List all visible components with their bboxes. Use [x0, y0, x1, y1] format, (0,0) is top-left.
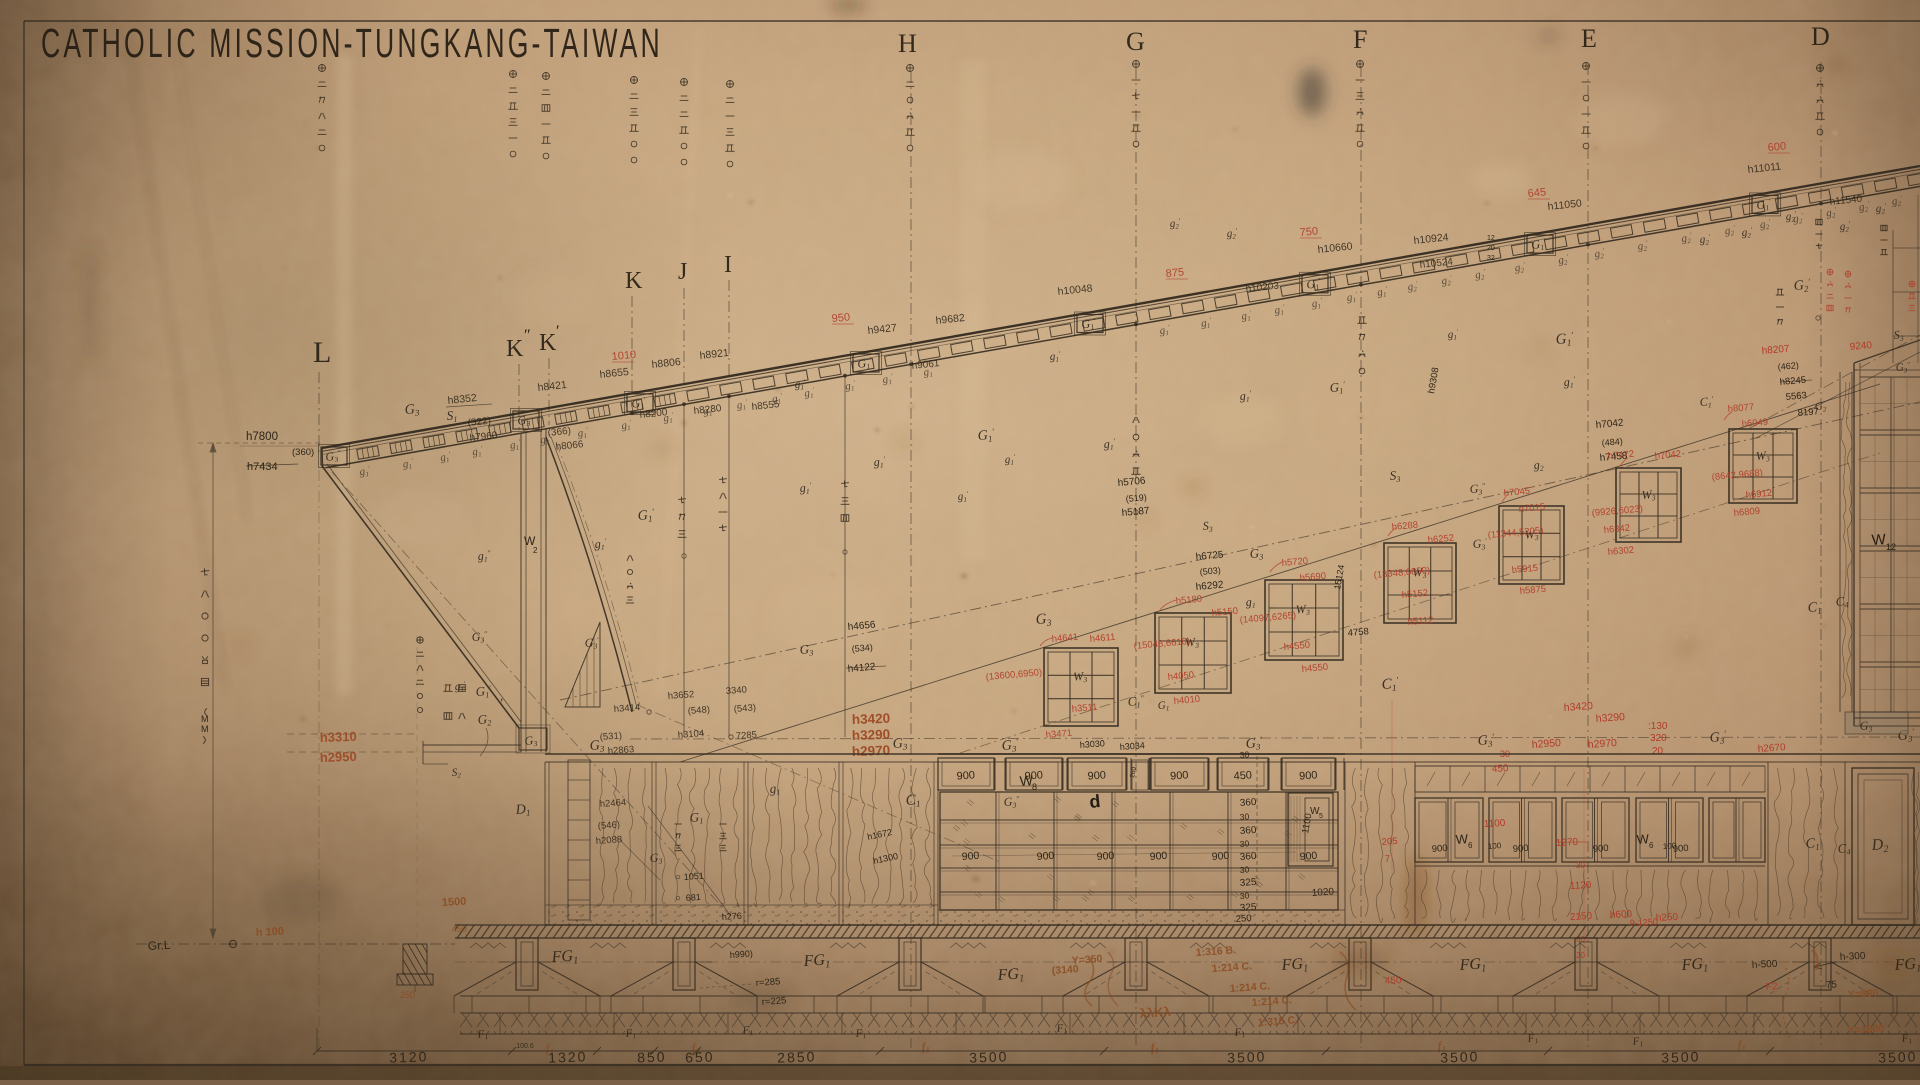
svg-text:h2970: h2970	[1587, 737, 1617, 751]
svg-text:3340: 3340	[725, 685, 747, 697]
svg-text:G3′: G3′	[1709, 728, 1727, 746]
svg-text:,: ,	[500, 689, 503, 703]
svg-text:G1′: G1′	[475, 683, 492, 700]
svg-text:h3290: h3290	[852, 727, 891, 743]
svg-text:(546): (546)	[597, 819, 620, 832]
svg-text:h4550: h4550	[1301, 662, 1328, 675]
svg-text:h7045: h7045	[1503, 486, 1530, 499]
svg-text:850: 850	[637, 1048, 667, 1065]
svg-text:E: E	[1581, 24, 1597, 53]
svg-text:(531): (531)	[599, 730, 622, 743]
svg-text:7285: 7285	[735, 730, 757, 742]
svg-text:h2670: h2670	[1757, 742, 1786, 755]
svg-text:h3420: h3420	[1563, 700, 1593, 714]
svg-text:h6288: h6288	[1391, 520, 1418, 533]
svg-text:I: I	[724, 252, 732, 278]
svg-text:G1′: G1′	[1080, 316, 1096, 333]
svg-text:100: 100	[1488, 841, 1502, 851]
svg-text:h7472: h7472	[1607, 449, 1634, 462]
svg-text:h3420: h3420	[852, 711, 891, 727]
svg-text:h3034: h3034	[1119, 740, 1145, 752]
svg-text:F: F	[1353, 25, 1367, 54]
svg-text:3500: 3500	[969, 1048, 1009, 1065]
svg-text:G1′: G1′	[637, 506, 655, 524]
svg-text:h6049: h6049	[1741, 417, 1768, 430]
svg-text:8: 8	[1032, 782, 1037, 792]
svg-text:h4050: h4050	[1167, 670, 1194, 683]
svg-text:6: 6	[1649, 841, 1654, 850]
svg-text:h3652: h3652	[667, 689, 694, 702]
svg-text:(519): (519)	[1125, 492, 1147, 504]
svg-text:h5150: h5150	[1211, 606, 1238, 619]
svg-text:1100: 1100	[1484, 818, 1506, 830]
svg-text:G1′: G1′	[1305, 276, 1321, 293]
svg-text:Gr.L: Gr.L	[147, 938, 171, 953]
svg-text:h6252: h6252	[1427, 533, 1454, 546]
svg-text:r=225: r=225	[761, 995, 786, 1008]
svg-text:1500: 1500	[442, 896, 467, 909]
svg-text:30: 30	[1239, 890, 1249, 901]
svg-text:G3′: G3′	[1477, 731, 1495, 749]
svg-text:3500: 3500	[1440, 1048, 1480, 1065]
svg-text:875: 875	[1165, 266, 1184, 280]
svg-text:250: 250	[1235, 913, 1252, 925]
svg-text:3500: 3500	[1661, 1048, 1701, 1065]
svg-text:5: 5	[1319, 813, 1323, 820]
svg-text:CATHOLIC MISSION-TUNGKANG-TAIW: CATHOLIC MISSION-TUNGKANG-TAIWAN	[41, 21, 663, 66]
svg-text:12: 12	[1886, 542, 1896, 552]
svg-text:h3471: h3471	[1045, 728, 1072, 741]
svg-text:450: 450	[1385, 975, 1403, 987]
svg-text:G3′: G3′	[1472, 536, 1487, 552]
svg-text:100.6: 100.6	[516, 1043, 534, 1050]
svg-text:h4641: h4641	[1051, 632, 1078, 645]
svg-text:100: 100	[1663, 841, 1677, 851]
svg-text:1010: 1010	[611, 349, 636, 363]
svg-text:K: K	[625, 268, 643, 294]
svg-text:G1′: G1′	[977, 426, 995, 444]
svg-text:C1′: C1′	[1699, 394, 1714, 410]
svg-text:h2863: h2863	[607, 744, 634, 757]
svg-text:4758: 4758	[1347, 626, 1369, 639]
svg-text:G3′: G3′	[584, 635, 599, 651]
svg-text:3120: 3120	[389, 1048, 429, 1065]
svg-text:h276: h276	[721, 911, 742, 922]
svg-text:h5690: h5690	[1299, 571, 1326, 584]
svg-text:r=285: r=285	[755, 976, 780, 989]
svg-text:W: W	[1871, 531, 1887, 549]
svg-text:7: 7	[1384, 854, 1390, 865]
svg-text:600: 600	[1767, 140, 1786, 154]
svg-text:h990): h990)	[729, 948, 753, 960]
svg-text:20: 20	[1487, 245, 1495, 252]
svg-text:h2950: h2950	[1531, 737, 1561, 751]
svg-text:900: 900	[1592, 843, 1609, 855]
svg-text:900: 900	[1299, 769, 1318, 782]
svg-text:9240: 9240	[1849, 340, 1873, 353]
svg-text:5563: 5563	[1785, 390, 1807, 403]
svg-text:h-300: h-300	[1840, 951, 1867, 963]
svg-text:30: 30	[1239, 838, 1249, 849]
svg-text:M: M	[201, 724, 209, 734]
svg-text:2850: 2850	[777, 1048, 817, 1065]
svg-text:G1′: G1′	[1530, 236, 1546, 253]
svg-text:h4550: h4550	[1283, 640, 1310, 653]
svg-text:h6302: h6302	[1607, 545, 1634, 558]
svg-text:G1′: G1′	[856, 355, 872, 372]
svg-text:950: 950	[831, 311, 850, 325]
svg-text:h-500: h-500	[1752, 959, 1779, 971]
svg-text:h7434: h7434	[247, 461, 278, 473]
svg-text:900: 900	[1170, 769, 1189, 782]
svg-text:320: 320	[1650, 733, 1667, 744]
svg-text:681: 681	[685, 892, 701, 903]
svg-text:360: 360	[1239, 825, 1257, 837]
svg-text:3500: 3500	[1878, 1048, 1918, 1065]
svg-text:(484): (484)	[1601, 436, 1623, 448]
svg-text:h7015: h7015	[1518, 502, 1545, 515]
svg-text:h2950: h2950	[320, 749, 357, 765]
svg-text:F2: F2	[1766, 981, 1779, 993]
svg-text:H: H	[898, 29, 917, 58]
svg-text:h3290: h3290	[1595, 711, 1625, 725]
svg-text:450: 450	[1233, 769, 1252, 782]
svg-text:h2970: h2970	[852, 743, 891, 759]
svg-text:900: 900	[1096, 850, 1114, 863]
svg-text:6: 6	[1468, 841, 1473, 850]
svg-text:(548): (548)	[687, 704, 710, 717]
svg-text:K: K	[506, 336, 524, 362]
svg-text:h8077: h8077	[1727, 402, 1754, 415]
svg-text:(360): (360)	[292, 447, 314, 458]
svg-text:Y=900: Y=900	[1847, 987, 1879, 1001]
svg-text:8197: 8197	[1797, 406, 1819, 419]
svg-text:h6912: h6912	[1745, 488, 1772, 501]
svg-text:h7042: h7042	[1654, 449, 1681, 462]
svg-text:h4010: h4010	[1173, 694, 1200, 707]
svg-text:h5875: h5875	[1519, 584, 1546, 597]
svg-text:30: 30	[1239, 811, 1249, 822]
svg-text:G1′: G1′	[1329, 379, 1346, 396]
svg-text:(543): (543)	[733, 702, 756, 715]
svg-text:h5152: h5152	[1401, 588, 1428, 601]
svg-text:30: 30	[1239, 749, 1249, 760]
svg-text:h4611: h4611	[1089, 632, 1116, 645]
svg-text:λλΚλ: λλΚλ	[1139, 1004, 1172, 1021]
svg-text:900: 900	[1431, 843, 1448, 855]
svg-text:360: 360	[1239, 797, 1257, 809]
svg-text:900: 900	[1512, 843, 1529, 855]
svg-text:9-1250: 9-1250	[1630, 917, 1659, 928]
svg-text:′: ′	[556, 323, 560, 340]
svg-text:1120: 1120	[1570, 880, 1592, 892]
svg-text:d: d	[1088, 791, 1101, 812]
svg-text:30: 30	[1239, 864, 1249, 875]
svg-text:645: 645	[1527, 186, 1546, 200]
svg-text:900: 900	[961, 850, 979, 863]
svg-text:1270: 1270	[1556, 837, 1579, 849]
svg-text:12: 12	[1487, 235, 1495, 242]
svg-text:h5720: h5720	[1281, 556, 1308, 569]
svg-text:Y=1000: Y=1000	[1847, 1022, 1884, 1037]
svg-text:h5112: h5112	[1407, 615, 1434, 628]
svg-text:205: 205	[1381, 836, 1398, 848]
svg-text:h3104: h3104	[677, 728, 704, 741]
svg-text:3500: 3500	[1227, 1048, 1267, 1065]
svg-text:900: 900	[1211, 850, 1229, 863]
svg-text:J: J	[678, 259, 687, 285]
svg-text:360: 360	[1239, 851, 1257, 863]
svg-text:75: 75	[1826, 979, 1838, 991]
svg-text:h6342: h6342	[1603, 523, 1630, 536]
svg-text:2: 2	[533, 546, 538, 555]
svg-text:h3030: h3030	[1079, 738, 1105, 750]
svg-text:1320: 1320	[548, 1048, 588, 1065]
svg-text:h2464: h2464	[599, 797, 626, 810]
svg-text:h6809: h6809	[1733, 506, 1760, 519]
svg-text:(3140: (3140	[1051, 963, 1079, 977]
svg-text:1020: 1020	[1311, 886, 1334, 899]
svg-text:650: 650	[685, 1048, 715, 1065]
svg-text:K: K	[539, 330, 557, 356]
svg-text::130: :130	[1648, 721, 1668, 732]
svg-text:250: 250	[400, 990, 415, 1000]
svg-text:(462): (462)	[1777, 360, 1799, 372]
svg-text:900: 900	[956, 769, 975, 782]
svg-text:450: 450	[452, 923, 468, 934]
svg-text:450: 450	[1492, 763, 1510, 775]
svg-text:h5915: h5915	[1511, 563, 1538, 576]
svg-text:h7800: h7800	[246, 431, 278, 443]
svg-text:900: 900	[1036, 850, 1054, 863]
svg-text:325: 325	[1239, 877, 1257, 889]
svg-text:h3310: h3310	[320, 729, 357, 745]
svg-text:2150: 2150	[1570, 911, 1593, 923]
svg-text:750: 750	[1299, 225, 1318, 239]
svg-text:L: L	[313, 336, 331, 369]
svg-text:h3414: h3414	[613, 702, 640, 715]
svg-text:G2′: G2′	[1793, 276, 1811, 294]
svg-text:h5180: h5180	[1175, 594, 1202, 607]
svg-text:900: 900	[1087, 769, 1106, 782]
svg-text:(534): (534)	[851, 642, 873, 654]
svg-text:G: G	[1126, 27, 1145, 56]
svg-text:32: 32	[1487, 255, 1495, 262]
svg-text:h3511: h3511	[1071, 702, 1098, 715]
svg-text:(503): (503)	[1199, 565, 1221, 577]
svg-text:20: 20	[1652, 746, 1664, 757]
svg-text:900: 900	[1149, 850, 1167, 863]
svg-text:″: ″	[524, 327, 531, 344]
svg-text:D: D	[1811, 22, 1830, 51]
svg-text:h 100: h 100	[256, 926, 285, 939]
svg-text:G1′: G1′	[1755, 196, 1771, 213]
svg-text:M: M	[201, 714, 209, 724]
